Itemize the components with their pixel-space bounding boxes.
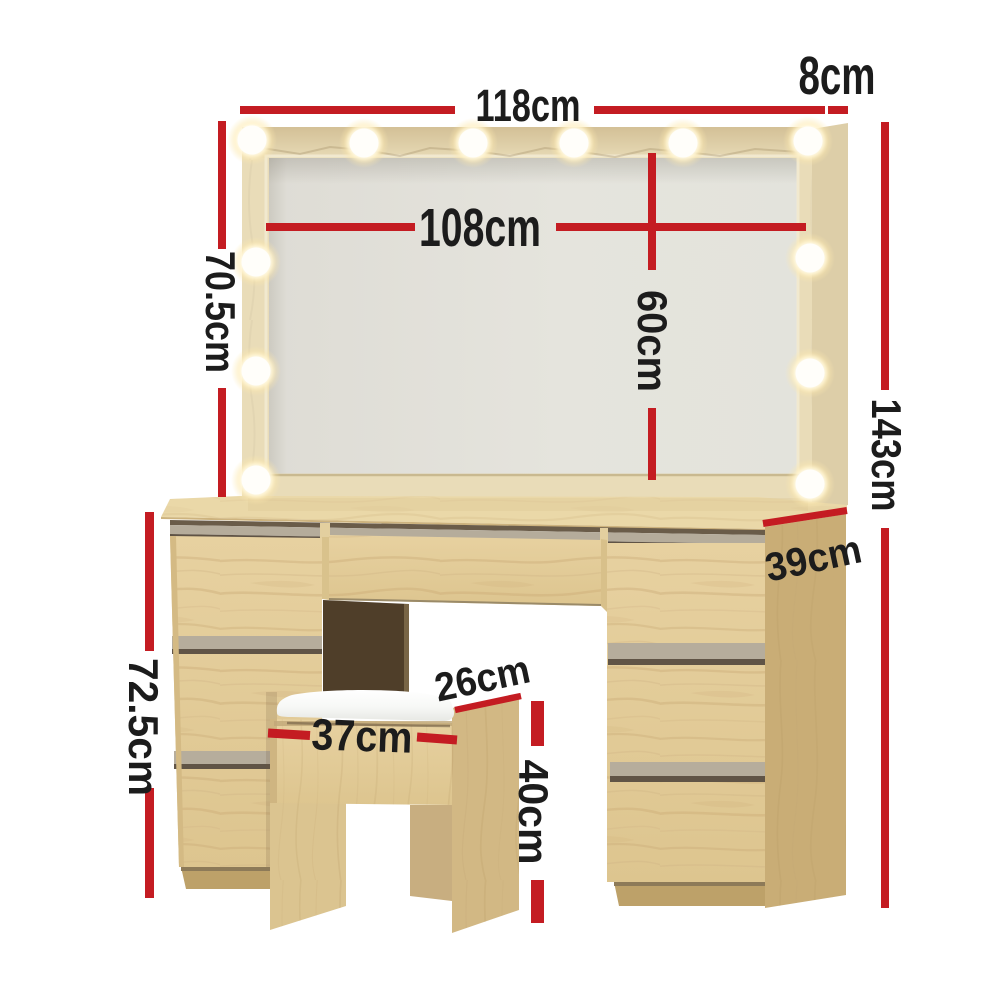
svg-text:143cm: 143cm	[863, 399, 910, 512]
svg-text:40cm: 40cm	[510, 760, 557, 865]
svg-text:108cm: 108cm	[419, 198, 541, 258]
svg-text:72.5cm: 72.5cm	[120, 658, 167, 796]
svg-text:118cm: 118cm	[476, 80, 581, 131]
svg-text:60cm: 60cm	[629, 290, 676, 392]
svg-text:8cm: 8cm	[799, 46, 876, 106]
svg-text:37cm: 37cm	[311, 710, 414, 762]
svg-text:70.5cm: 70.5cm	[197, 251, 244, 373]
